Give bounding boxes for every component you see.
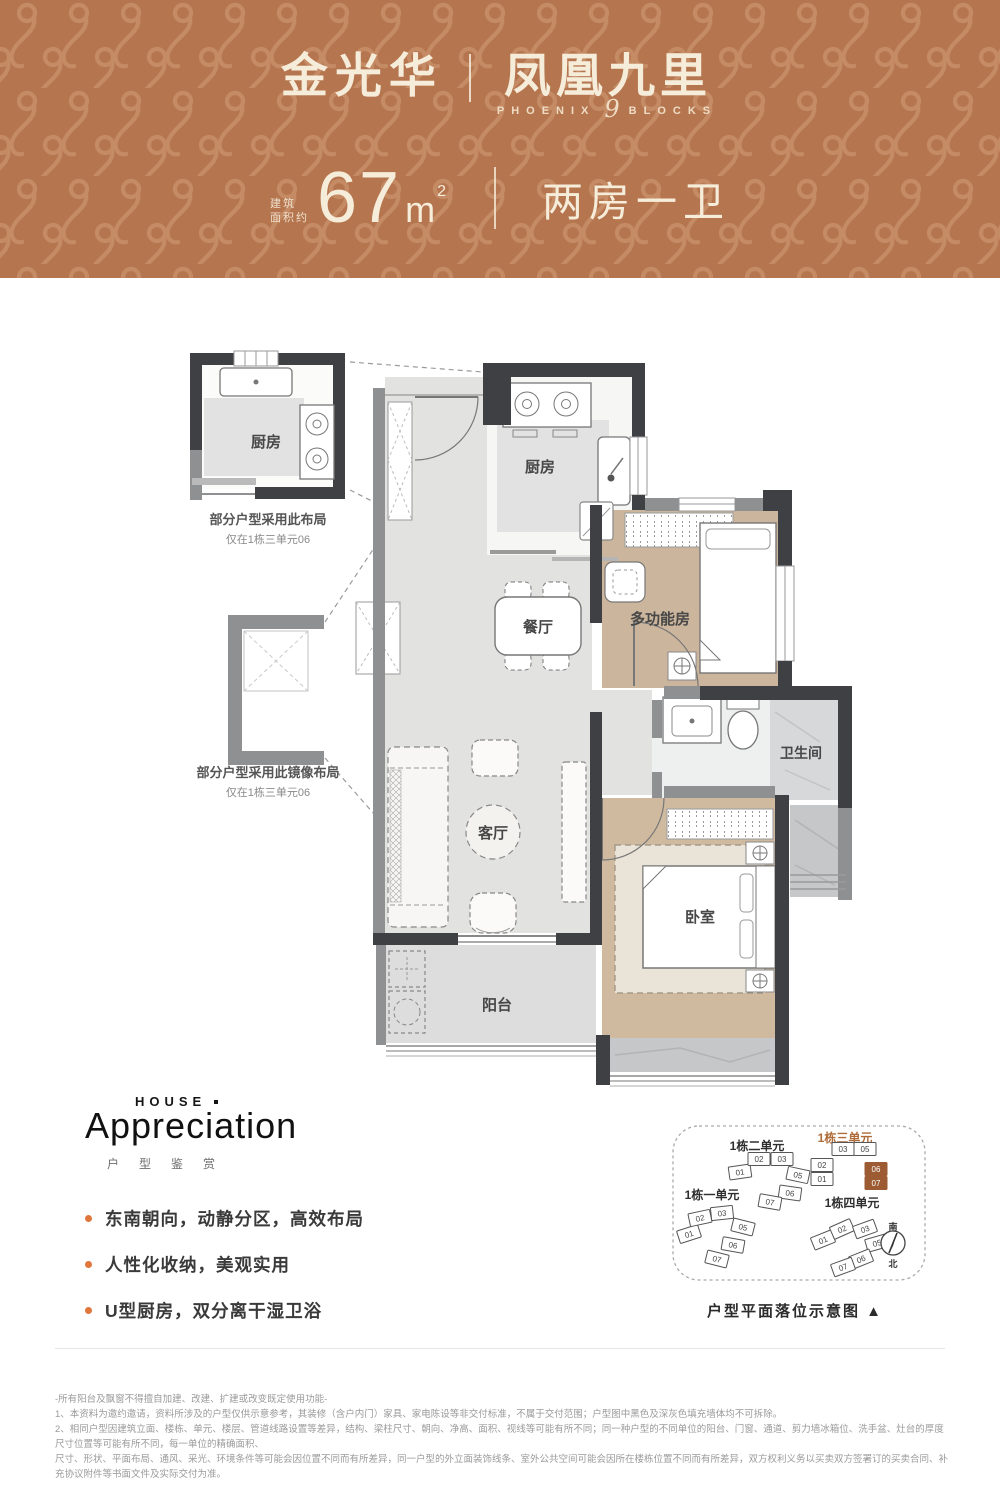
unit-box: 02 bbox=[811, 1159, 833, 1172]
feature-text: U型厨房，双分离干湿卫浴 bbox=[105, 1298, 322, 1323]
unit-box: 02 bbox=[688, 1209, 712, 1226]
multifunction-bed bbox=[700, 523, 776, 673]
inset-mirror-caption: 部分户型采用此镜像布局 bbox=[196, 765, 339, 780]
unit-box: 03 bbox=[832, 1143, 854, 1156]
feature-item: U型厨房，双分离干湿卫浴 bbox=[85, 1298, 445, 1323]
kitchen-inset-sink bbox=[220, 368, 292, 396]
unit-cluster: 1栋二单元010203050607 bbox=[728, 1138, 810, 1210]
logo-lockup: 金光华 凤凰九里 PHOENIX 9 BLOCKS bbox=[0, 46, 1000, 117]
area-value: 67m2 bbox=[317, 162, 448, 234]
header-pattern bbox=[0, 0, 1000, 278]
feature-list: 东南朝向，动静分区，高效布局人性化收纳，美观实用U型厨房，双分离干湿卫浴 bbox=[85, 1206, 445, 1323]
cluster-name: 1栋一单元 bbox=[685, 1187, 740, 1202]
unit-box: 07 bbox=[830, 1257, 855, 1277]
logo-divider bbox=[469, 54, 471, 102]
brand-name: 金光华 bbox=[281, 46, 443, 99]
feature-item: 东南朝向，动静分区，高效布局 bbox=[85, 1206, 445, 1231]
plant-multifunction bbox=[668, 652, 696, 680]
inset-top-subcaption: 仅在1栋三单元06 bbox=[226, 532, 310, 546]
unit-box: 03 bbox=[771, 1153, 793, 1166]
kitchen-inset-label: 厨房 bbox=[251, 433, 281, 451]
unit-cluster: 1栋四单元010203050607 bbox=[810, 1195, 889, 1277]
footer-divider bbox=[55, 1348, 945, 1349]
unit-box: 03 bbox=[852, 1219, 877, 1239]
bullet-dot bbox=[85, 1261, 92, 1268]
cluster-name: 1栋二单元 bbox=[730, 1138, 785, 1153]
unit-number: 03 bbox=[839, 1145, 848, 1154]
inset-mirror-subcaption: 仅在1栋三单元06 bbox=[226, 785, 310, 799]
area-divider bbox=[494, 167, 496, 229]
unit-box: 01 bbox=[677, 1224, 702, 1243]
compass-south-label: 南 bbox=[888, 1221, 897, 1232]
bathroom-label: 卫生间 bbox=[780, 745, 822, 761]
living-label: 客厅 bbox=[477, 824, 508, 842]
unit-number: 03 bbox=[717, 1208, 727, 1218]
unit-number: 06 bbox=[785, 1188, 796, 1198]
disclaimer-text: -所有阳台及飘窗不得擅自加建、改建、扩建或改变既定使用功能-1、本资料为邀约邀请… bbox=[55, 1392, 950, 1482]
feature-item: 人性化收纳，美观实用 bbox=[85, 1252, 445, 1277]
disclaimer-line: 1、本资料为邀约邀请，资料所涉及的户型仅供示意参考，其装修（含户内门）家具、家电… bbox=[55, 1407, 950, 1422]
unit-box: 06 bbox=[721, 1237, 745, 1254]
ottoman bbox=[472, 740, 518, 776]
feature-text: 东南朝向，动静分区，高效布局 bbox=[105, 1206, 364, 1231]
disclaimer-line: -所有阳台及飘窗不得擅自加建、改建、扩建或改变既定使用功能- bbox=[55, 1392, 950, 1407]
unit-box: 02 bbox=[748, 1153, 770, 1166]
nightstand-bottom bbox=[746, 970, 774, 992]
compass-north-label: 北 bbox=[888, 1258, 897, 1269]
unit-number: 05 bbox=[861, 1145, 870, 1154]
appreciation-cn-title: 户型鉴赏 bbox=[107, 1155, 445, 1172]
unit-box: 03 bbox=[710, 1205, 733, 1220]
tv-console bbox=[562, 762, 586, 902]
site-plan-caption: 户型平面落位示意图 ▲ bbox=[660, 1300, 930, 1321]
unit-number: 01 bbox=[818, 1175, 827, 1184]
bedroom-wardrobe bbox=[667, 809, 773, 839]
bedroom-label: 卧室 bbox=[685, 908, 715, 926]
balcony-label: 阳台 bbox=[482, 996, 512, 1014]
unit-number: 06 bbox=[872, 1165, 881, 1174]
unit-box: 07 bbox=[865, 1177, 887, 1190]
area-label: 建筑 面积约 bbox=[270, 197, 309, 225]
kitchen-label: 厨房 bbox=[525, 458, 555, 476]
unit-box: 05 bbox=[854, 1143, 876, 1156]
appreciation-en-title: Appreciation bbox=[85, 1105, 445, 1147]
disclaimer-line: 尺寸、形状、平面布局、通风、采光、环境条件等可能会因位置不同而有所差异，同一户型… bbox=[55, 1452, 950, 1482]
nightstand-top bbox=[746, 842, 774, 864]
bullet-dot bbox=[85, 1215, 92, 1222]
project-lockup: 凤凰九里 PHOENIX 9 BLOCKS bbox=[497, 46, 719, 117]
area-label-line1: 建筑 bbox=[270, 197, 309, 211]
unit-box: 01 bbox=[811, 1173, 833, 1186]
site-plan: 1栋一单元0102030506071栋二单元0102030506071栋三单元0… bbox=[650, 1112, 950, 1312]
toilet bbox=[727, 697, 759, 749]
inset-top-caption: 部分户型采用此布局 bbox=[209, 512, 326, 527]
kitchen-inset-stove bbox=[300, 405, 334, 479]
unit-box: 02 bbox=[829, 1219, 854, 1240]
kitchen-inset: 厨房 bbox=[190, 351, 345, 500]
unit-cluster: 1栋一单元010203050607 bbox=[677, 1187, 756, 1268]
unit-number: 02 bbox=[755, 1155, 764, 1164]
unit-number: 07 bbox=[872, 1179, 881, 1188]
area-label-line2: 面积约 bbox=[270, 211, 309, 225]
dining-label: 餐厅 bbox=[523, 618, 553, 636]
sofa bbox=[388, 747, 448, 927]
project-en-suffix: BLOCKS bbox=[629, 105, 717, 117]
mirror-inset bbox=[228, 615, 324, 765]
layout-type: 两房一卫 bbox=[542, 168, 730, 228]
unit-number: 02 bbox=[818, 1161, 827, 1170]
cluster-name: 1栋四单元 bbox=[825, 1195, 880, 1210]
multifunction-label: 多功能房 bbox=[630, 610, 690, 628]
area-unit: m2 bbox=[405, 189, 448, 230]
unit-box: 07 bbox=[705, 1250, 729, 1268]
header-banner: 金光华 凤凰九里 PHOENIX 9 BLOCKS 建筑 面积约 67m2 两房… bbox=[0, 0, 1000, 278]
site-plan-clusters: 1栋一单元0102030506071栋二单元0102030506071栋三单元0… bbox=[677, 1130, 890, 1277]
accent-chair bbox=[470, 893, 516, 933]
project-en-prefix: PHOENIX bbox=[497, 105, 596, 117]
unit-box: 05 bbox=[786, 1166, 810, 1183]
floor-plan: 厨房 部分户型采用此布局 仅在1栋三单元06 部分户型采用此镜像布局 仅在1栋三… bbox=[150, 330, 920, 1090]
unit-box: 06 bbox=[865, 1163, 887, 1176]
bullet-dot bbox=[85, 1307, 92, 1314]
multifunction-chair bbox=[605, 562, 645, 602]
compass: 南 北 bbox=[881, 1221, 905, 1269]
unit-cluster: 1栋三单元010203050607 bbox=[811, 1130, 887, 1190]
unit-number: 01 bbox=[735, 1167, 746, 1177]
unit-number: 03 bbox=[778, 1155, 787, 1164]
feature-text: 人性化收纳，美观实用 bbox=[105, 1252, 290, 1277]
kitchen-sink bbox=[598, 437, 630, 505]
area-banner: 建筑 面积约 67m2 两房一卫 bbox=[0, 162, 1000, 234]
project-name: 凤凰九里 bbox=[504, 46, 712, 99]
disclaimer-line: 2、相同户型因建筑立面、楼栋、单元、楼层、管道线路设置等差异，结构、梁柱尺寸、朝… bbox=[55, 1422, 950, 1452]
appreciation-section: HOUSE Appreciation 户型鉴赏 东南朝向，动静分区，高效布局人性… bbox=[85, 1094, 445, 1344]
bathroom-vanity bbox=[663, 697, 721, 743]
entry-closet bbox=[388, 402, 412, 520]
area-superscript: 2 bbox=[437, 183, 448, 200]
unit-box: 05 bbox=[731, 1218, 755, 1236]
unit-box: 01 bbox=[728, 1164, 752, 1180]
project-english: PHOENIX 9 BLOCKS bbox=[497, 105, 717, 117]
